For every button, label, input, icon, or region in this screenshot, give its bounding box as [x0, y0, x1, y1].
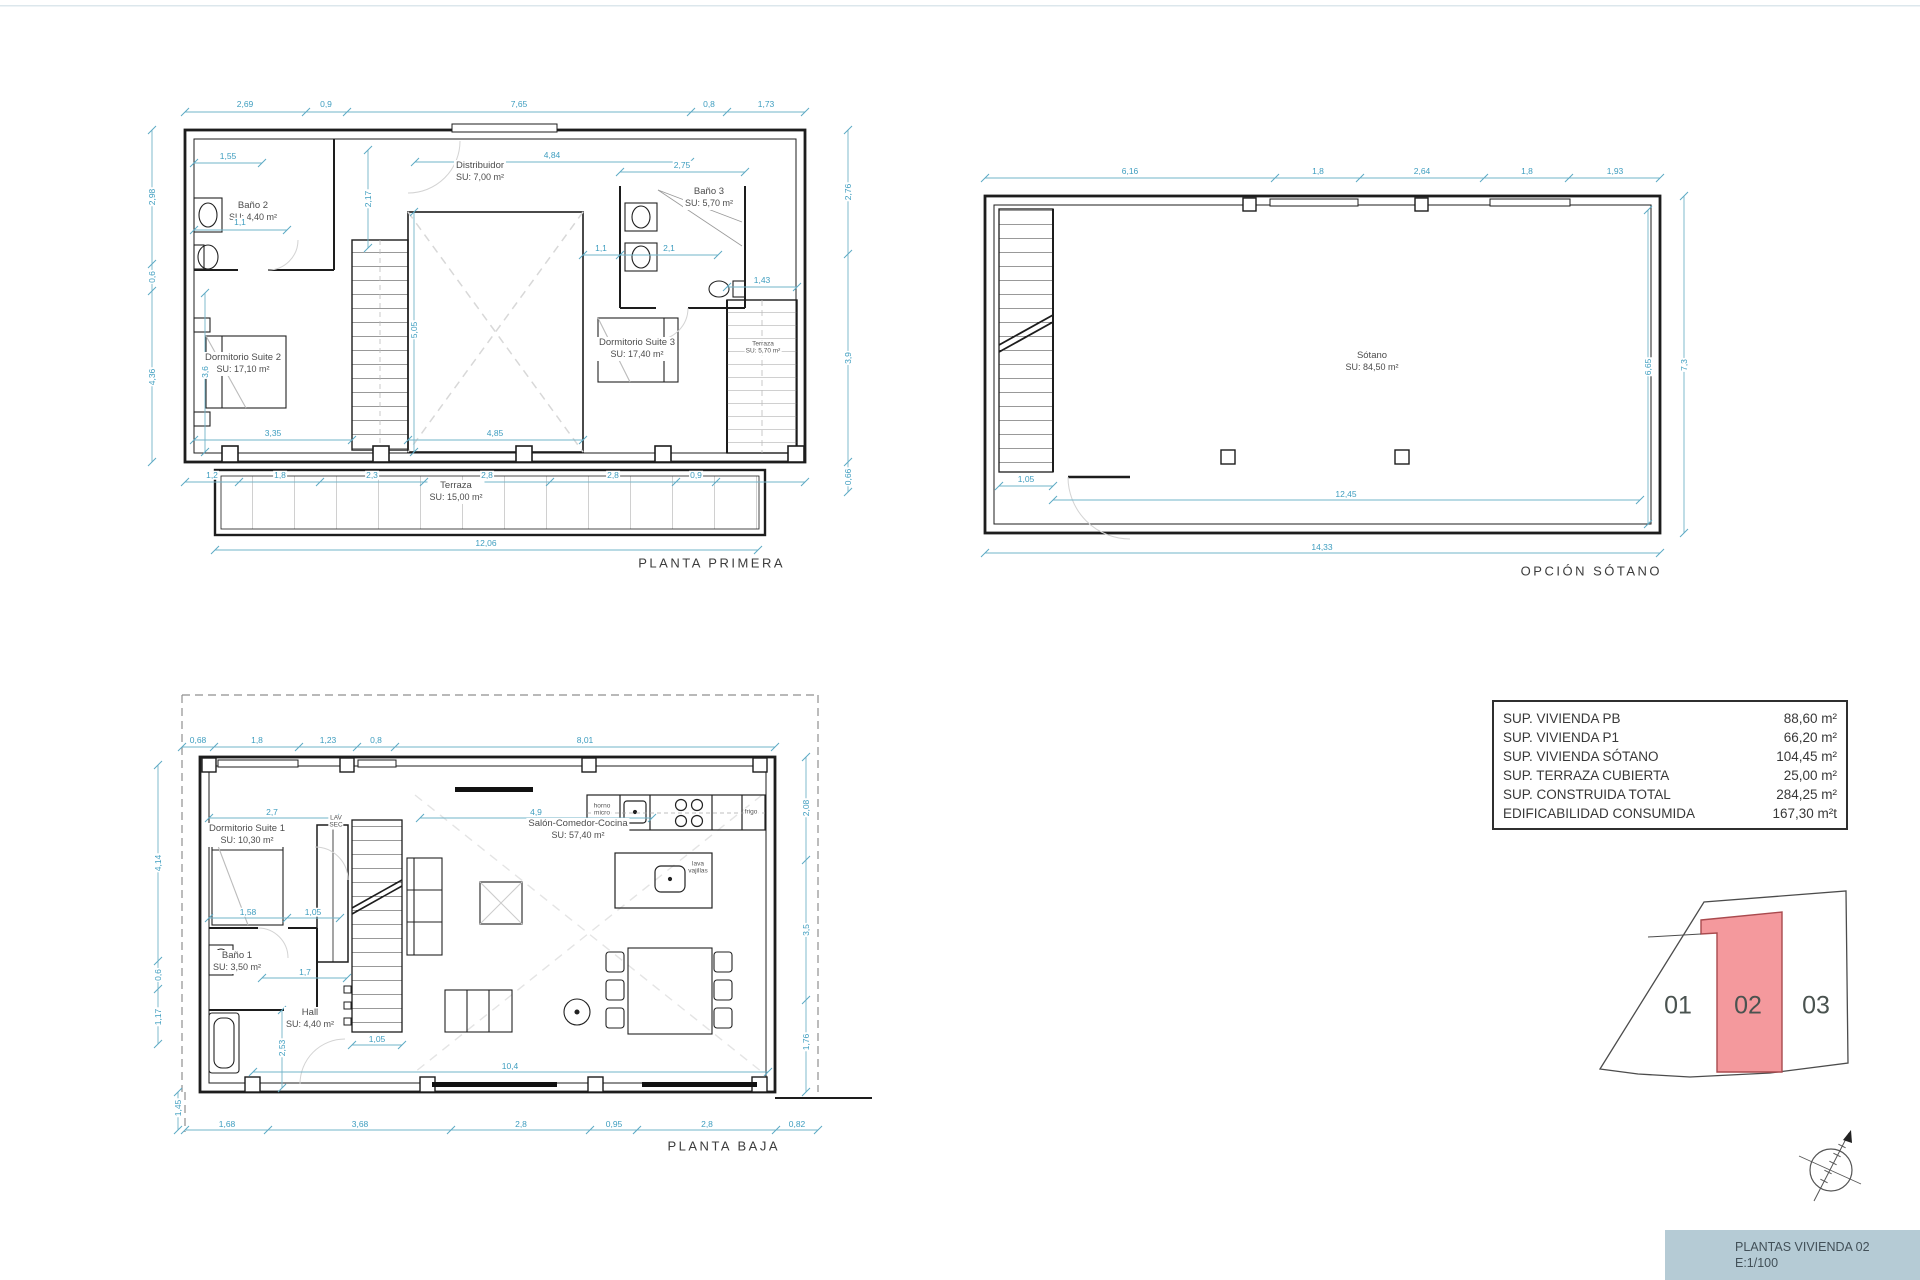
room-name: Terraza	[440, 480, 472, 491]
room-area: SU: 4,40 m²	[286, 1019, 334, 1031]
summary-row: SUP. CONSTRUIDA TOTAL284,25 m²	[1503, 785, 1837, 804]
dimension-label: 1,2	[205, 471, 219, 480]
dimension-label: 3,9	[844, 351, 853, 365]
dimension-label: 12,45	[1334, 490, 1357, 499]
dimension-label: 2,76	[844, 183, 853, 202]
dimension-label: 1,8	[1520, 167, 1534, 176]
room-area: micro	[594, 810, 611, 817]
room-area: SU: 15,00 m²	[429, 492, 482, 504]
room-label: Dormitorio Suite 3SU: 17,40 m²	[597, 337, 677, 361]
room-name: Hall	[302, 1007, 318, 1018]
summary-row: SUP. TERRAZA CUBIERTA25,00 m²	[1503, 766, 1837, 785]
dimension-label: 2,75	[673, 161, 692, 170]
dimension-label: 1,93	[1606, 167, 1625, 176]
summary-label: SUP. CONSTRUIDA TOTAL	[1503, 785, 1671, 804]
room-area: vajillas	[688, 868, 708, 875]
dimension-label: 4,36	[148, 368, 157, 387]
room-name: Terraza	[752, 341, 774, 348]
room-area: SU: 5,70 m²	[746, 348, 781, 355]
dimension-label: 4,9	[529, 808, 543, 817]
room-label: Baño 3SU: 5,70 m²	[683, 186, 735, 210]
dimension-label: 10,4	[501, 1062, 520, 1071]
room-area: SU: 3,50 m²	[213, 962, 261, 974]
dimension-label: 1,58	[239, 908, 258, 917]
site-unit-01: 01	[1664, 992, 1692, 1021]
summary-value: 25,00 m²	[1784, 766, 1837, 785]
dimension-label: 0,82	[788, 1120, 807, 1129]
room-name: Baño 3	[694, 186, 724, 197]
room-label: HallSU: 4,40 m²	[284, 1007, 336, 1031]
dimension-label: 2,1	[662, 244, 676, 253]
dimension-label: 2,53	[278, 1039, 287, 1058]
room-area: SU: 7,00 m²	[456, 172, 504, 184]
summary-label: EDIFICABILIDAD CONSUMIDA	[1503, 804, 1695, 823]
annotation-layer: PLANTA PRIMERABaño 2SU: 4,40 m²Distribui…	[0, 0, 1920, 1280]
room-area: SU: 10,30 m²	[209, 835, 285, 847]
dimension-label: 3,6	[201, 365, 210, 379]
room-name: lava	[692, 861, 704, 868]
dimension-label: 3,35	[264, 429, 283, 438]
title-block: PLANTAS VIVIENDA 02 E:1/100	[1665, 1230, 1920, 1280]
dimension-label: 0,6	[154, 968, 163, 982]
room-label: TerrazaSU: 5,70 m²	[745, 341, 782, 356]
dimension-label: 2,17	[364, 190, 373, 209]
dimension-label: 12,06	[474, 539, 497, 548]
summary-row: SUP. VIVIENDA PB88,60 m²	[1503, 709, 1837, 728]
dimension-label: 0,95	[605, 1120, 624, 1129]
plan-title-planta-baja: PLANTA BAJA	[667, 1139, 780, 1154]
room-name: Distribuidor	[456, 160, 504, 171]
room-name: Sótano	[1357, 350, 1387, 361]
dimension-label: 0,8	[369, 736, 383, 745]
dimension-label: 4,14	[154, 854, 163, 873]
room-area: SEC	[329, 822, 342, 829]
room-label: Dormitorio Suite 2SU: 17,10 m²	[203, 352, 283, 376]
dimension-label: 1,1	[233, 218, 247, 227]
room-label: hornomicro	[593, 803, 612, 818]
dimension-label: 1,1	[594, 244, 608, 253]
room-name: Baño 2	[238, 200, 268, 211]
dimension-label: 3,5	[802, 923, 811, 937]
drawing-sheet: PLANTA PRIMERABaño 2SU: 4,40 m²Distribui…	[0, 0, 1920, 1280]
dimension-label: 1,45	[174, 1099, 183, 1118]
dimension-label: 2,64	[1413, 167, 1432, 176]
dimension-label: 14,33	[1310, 543, 1333, 552]
dimension-label: 0,9	[689, 471, 703, 480]
dimension-label: 2,3	[365, 471, 379, 480]
summary-label: SUP. VIVIENDA P1	[1503, 728, 1619, 747]
room-label: Dormitorio Suite 1SU: 10,30 m²	[207, 823, 287, 847]
dimension-label: 1,8	[1311, 167, 1325, 176]
dimension-label: 2,98	[148, 188, 157, 207]
dimension-label: 1,05	[1017, 475, 1036, 484]
summary-label: SUP. VIVIENDA PB	[1503, 709, 1621, 728]
room-label: frigo	[744, 808, 759, 815]
dimension-label: 1,05	[368, 1035, 387, 1044]
room-name: Baño 1	[222, 950, 252, 961]
surface-summary-table: SUP. VIVIENDA PB88,60 m²SUP. VIVIENDA P1…	[1492, 700, 1848, 830]
dimension-label: 6,16	[1121, 167, 1140, 176]
site-unit-02: 02	[1734, 992, 1762, 1021]
dimension-label: 1,43	[753, 276, 772, 285]
room-label: Salón-Comedor-CocinaSU: 57,40 m²	[526, 818, 629, 842]
dimension-label: 6,65	[1644, 358, 1653, 377]
title-block-scale: E:1/100	[1735, 1255, 1920, 1271]
room-label: TerrazaSU: 15,00 m²	[427, 480, 484, 504]
summary-row: EDIFICABILIDAD CONSUMIDA167,30 m²t	[1503, 804, 1837, 823]
dimension-label: 5,05	[410, 321, 419, 340]
room-label: Baño 1SU: 3,50 m²	[211, 950, 263, 974]
room-name: horno	[594, 803, 611, 810]
dimension-label: 1,73	[757, 100, 776, 109]
room-name: LAV	[330, 815, 342, 822]
summary-value: 167,30 m²t	[1772, 804, 1837, 823]
room-area: SU: 17,10 m²	[205, 364, 281, 376]
summary-label: SUP. TERRAZA CUBIERTA	[1503, 766, 1669, 785]
dimension-label: 1,17	[154, 1008, 163, 1027]
summary-value: 104,45 m²	[1776, 747, 1837, 766]
room-label: SótanoSU: 84,50 m²	[1343, 350, 1400, 374]
room-label: LAVSEC	[328, 815, 343, 830]
dimension-label: 1,23	[319, 736, 338, 745]
dimension-label: 2,8	[700, 1120, 714, 1129]
dimension-label: 1,76	[802, 1033, 811, 1052]
room-area: SU: 17,40 m²	[599, 349, 675, 361]
summary-row: SUP. VIVIENDA SÓTANO104,45 m²	[1503, 747, 1837, 766]
site-unit-03: 03	[1802, 992, 1830, 1021]
dimension-label: 2,08	[802, 799, 811, 818]
title-block-project: PLANTAS VIVIENDA 02	[1735, 1239, 1920, 1255]
dimension-label: 1,55	[219, 152, 238, 161]
dimension-label: 2,69	[236, 100, 255, 109]
room-name: Dormitorio Suite 1	[209, 823, 285, 834]
dimension-label: 4,84	[543, 151, 562, 160]
dimension-label: 2,8	[480, 471, 494, 480]
dimension-label: 7,65	[510, 100, 529, 109]
room-area: SU: 5,70 m²	[685, 198, 733, 210]
dimension-label: 1,8	[250, 736, 264, 745]
dimension-label: 0,66	[844, 468, 853, 487]
dimension-label: 4,85	[486, 429, 505, 438]
dimension-label: 0,6	[148, 270, 157, 284]
dimension-label: 0,8	[702, 100, 716, 109]
summary-row: SUP. VIVIENDA P166,20 m²	[1503, 728, 1837, 747]
room-name: Dormitorio Suite 3	[599, 337, 675, 348]
dimension-label: 2,8	[606, 471, 620, 480]
room-label: lavavajillas	[687, 861, 709, 876]
room-area: SU: 84,50 m²	[1345, 362, 1398, 374]
plan-title-planta-primera: PLANTA PRIMERA	[638, 556, 785, 571]
dimension-label: 2,7	[265, 808, 279, 817]
summary-value: 88,60 m²	[1784, 709, 1837, 728]
dimension-label: 3,68	[351, 1120, 370, 1129]
dimension-label: 1,05	[304, 908, 323, 917]
dimension-label: 0,68	[189, 736, 208, 745]
room-area: SU: 57,40 m²	[528, 830, 627, 842]
plan-title-opcion-sotano: OPCIÓN SÓTANO	[1521, 564, 1662, 579]
room-label: DistribuidorSU: 7,00 m²	[454, 160, 506, 184]
dimension-label: 1,8	[273, 471, 287, 480]
dimension-label: 8,01	[576, 736, 595, 745]
room-name: frigo	[745, 808, 758, 815]
dimension-label: 0,9	[319, 100, 333, 109]
room-name: Salón-Comedor-Cocina	[528, 818, 627, 829]
dimension-label: 2,8	[514, 1120, 528, 1129]
dimension-label: 7,3	[1680, 358, 1689, 372]
dimension-label: 1,68	[218, 1120, 237, 1129]
room-name: Dormitorio Suite 2	[205, 352, 281, 363]
summary-label: SUP. VIVIENDA SÓTANO	[1503, 747, 1659, 766]
summary-value: 66,20 m²	[1784, 728, 1837, 747]
dimension-label: 1,7	[298, 968, 312, 977]
summary-value: 284,25 m²	[1776, 785, 1837, 804]
